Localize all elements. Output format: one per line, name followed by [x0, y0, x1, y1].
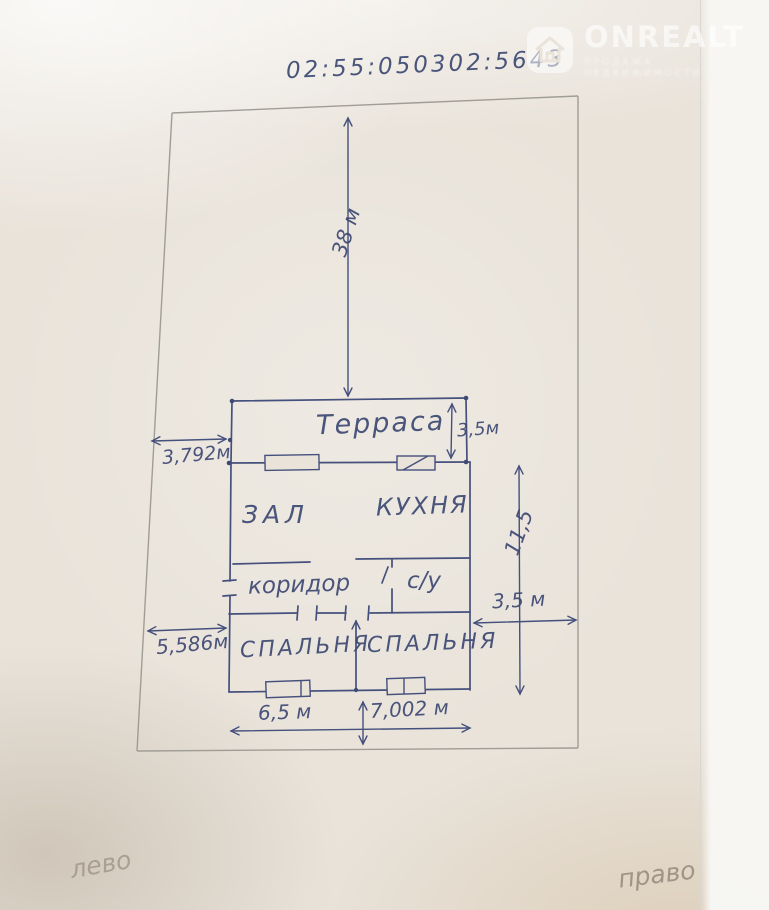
bedroom-top-wall: [229, 612, 470, 614]
room-label-bedroom-2: СПАЛЬНЯ: [367, 631, 499, 658]
bathroom-door-swing: [382, 567, 388, 583]
dim-label-house-width-total: 7,002 м: [370, 697, 450, 721]
dim-label-offset-right: 3,5 м: [492, 589, 546, 612]
room-label-terrace: Терраса: [316, 408, 446, 439]
house-left-wall: [229, 463, 231, 692]
dim-label-house-width-left: 6,5 м: [258, 701, 312, 723]
terrace-top-wall: [232, 398, 466, 401]
plan-drawing: [0, 0, 769, 910]
room-label-corridor: коридор: [248, 572, 351, 599]
dim-line-terrace-depth: [451, 404, 452, 458]
dim-line-offset-left-top: [152, 439, 226, 441]
dim-line-house-depth: [519, 466, 520, 694]
room-label-kitchen: КУХНЯ: [376, 492, 470, 519]
dim-label-offset-left-bottom: 5,586м: [155, 631, 229, 657]
corridor-top-wall: [233, 562, 310, 564]
bathroom-top-wall: [356, 558, 470, 559]
room-label-hall: ЗАЛ: [242, 502, 309, 527]
house-bottom-wall: [229, 689, 470, 692]
entry-door-jambs: [223, 580, 236, 596]
bedroom2-window: [387, 677, 426, 694]
room-label-bathroom: с/у: [407, 570, 441, 593]
floor-plan-photo: ONREALT ПРОДАЖА НЕДВИЖИМОСТИ: [0, 0, 769, 910]
bedroom1-window: [266, 680, 311, 698]
hall-window: [265, 455, 319, 471]
dim-line-offset-right: [474, 620, 576, 623]
dim-label-terrace-depth: 3,5м: [456, 420, 499, 441]
terrace-left-wall: [231, 401, 232, 462]
dim-line-house-width: [231, 728, 470, 731]
